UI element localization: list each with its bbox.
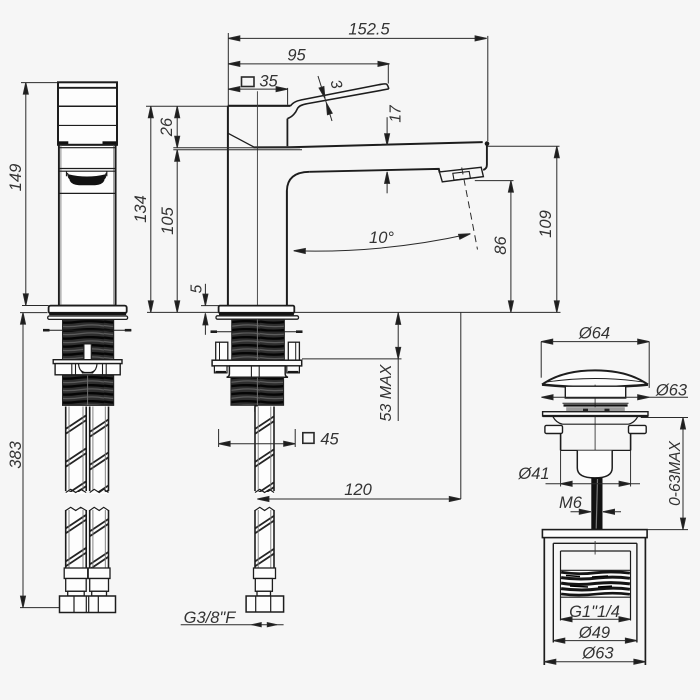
svg-text:383: 383 <box>7 440 25 468</box>
svg-text:5: 5 <box>189 284 206 293</box>
svg-text:10°: 10° <box>369 229 394 247</box>
svg-text:Ø63: Ø63 <box>581 645 614 663</box>
svg-text:152.5: 152.5 <box>348 21 390 39</box>
svg-text:45: 45 <box>320 431 339 449</box>
svg-text:134: 134 <box>132 195 150 223</box>
svg-text:109: 109 <box>537 210 555 238</box>
svg-text:0-63MAX: 0-63MAX <box>667 441 684 506</box>
svg-text:26: 26 <box>158 117 176 137</box>
svg-text:M6: M6 <box>559 494 583 512</box>
svg-text:105: 105 <box>159 206 177 234</box>
svg-text:G1"1/4: G1"1/4 <box>569 603 620 621</box>
svg-text:120: 120 <box>344 481 372 499</box>
svg-text:53 MAX: 53 MAX <box>378 363 395 421</box>
svg-text:Ø41: Ø41 <box>517 465 549 483</box>
svg-text:Ø49: Ø49 <box>578 624 610 642</box>
svg-text:Ø63: Ø63 <box>655 382 688 400</box>
svg-text:17: 17 <box>388 104 405 123</box>
svg-text:95: 95 <box>287 47 306 65</box>
svg-text:149: 149 <box>7 164 25 192</box>
svg-text:86: 86 <box>492 236 510 255</box>
svg-text:Ø64: Ø64 <box>578 325 610 343</box>
